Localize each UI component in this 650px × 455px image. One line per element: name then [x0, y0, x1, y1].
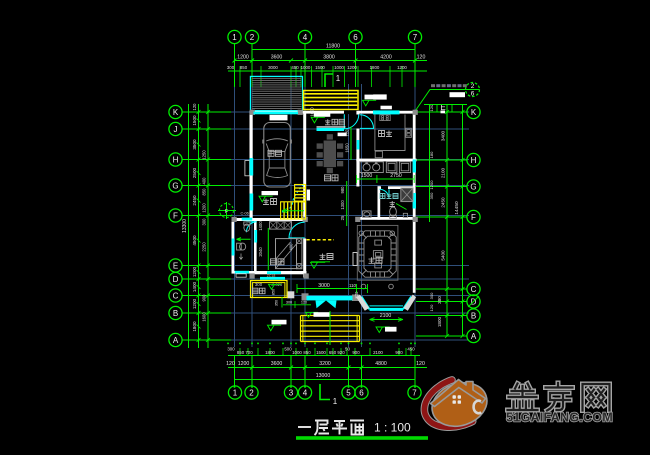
svg-text:350: 350 — [429, 192, 434, 199]
svg-text:51GAIFANG.COM: 51GAIFANG.COM — [506, 411, 613, 425]
svg-text:3600: 3600 — [271, 361, 283, 367]
svg-text:1200: 1200 — [347, 65, 357, 70]
svg-text:1: 1 — [232, 33, 237, 42]
svg-text:300: 300 — [286, 300, 292, 304]
svg-text:850: 850 — [272, 289, 276, 295]
svg-text:1200: 1200 — [192, 298, 197, 309]
svg-text:1400: 1400 — [192, 281, 197, 292]
svg-text:500: 500 — [284, 347, 292, 352]
svg-text:120: 120 — [429, 104, 434, 111]
svg-text:G: G — [470, 182, 476, 191]
svg-text:3800: 3800 — [323, 55, 335, 61]
svg-text:400: 400 — [202, 177, 207, 185]
svg-text:1: 1 — [336, 74, 341, 83]
svg-text:K: K — [173, 108, 179, 117]
svg-text:25: 25 — [340, 215, 345, 220]
svg-text:1800: 1800 — [265, 350, 275, 355]
svg-text:5: 5 — [346, 388, 351, 397]
svg-text:1200: 1200 — [397, 65, 407, 70]
svg-text:B: B — [173, 309, 178, 318]
svg-text:4800: 4800 — [375, 361, 387, 367]
svg-text:450: 450 — [291, 65, 299, 70]
svg-text:2100: 2100 — [373, 350, 383, 355]
svg-text:5400: 5400 — [441, 250, 446, 261]
svg-text:2250: 2250 — [202, 242, 207, 252]
svg-text:3200: 3200 — [319, 361, 331, 367]
svg-text:3000: 3000 — [268, 65, 278, 70]
svg-text:300: 300 — [227, 65, 235, 70]
svg-text:400: 400 — [289, 243, 294, 251]
svg-text:1000: 1000 — [334, 65, 344, 70]
svg-text:850: 850 — [303, 350, 311, 355]
svg-text:3600: 3600 — [271, 55, 283, 61]
svg-text:820: 820 — [354, 291, 359, 299]
svg-text:3: 3 — [289, 388, 294, 397]
svg-text:300: 300 — [255, 282, 263, 287]
svg-text:C-06: C-06 — [241, 212, 249, 216]
svg-text:1500: 1500 — [315, 65, 325, 70]
svg-text:14450: 14450 — [454, 201, 460, 215]
svg-text:120: 120 — [429, 304, 434, 311]
svg-text:4200: 4200 — [380, 55, 392, 61]
svg-text:1200: 1200 — [237, 55, 249, 61]
svg-text:300: 300 — [227, 347, 235, 352]
svg-text:2100: 2100 — [441, 167, 446, 178]
svg-text:1250: 1250 — [202, 150, 207, 160]
svg-text:900: 900 — [352, 350, 360, 355]
svg-text:F: F — [225, 209, 228, 215]
svg-text:50: 50 — [345, 347, 350, 352]
svg-text:6: 6 — [359, 388, 364, 397]
svg-text:980: 980 — [340, 186, 345, 194]
svg-text:E: E — [173, 261, 178, 270]
svg-text:2040: 2040 — [258, 247, 263, 257]
svg-text:850: 850 — [237, 350, 245, 355]
svg-text:3500: 3500 — [192, 139, 197, 150]
svg-text:120: 120 — [345, 129, 350, 137]
svg-text:1: 1 — [333, 397, 338, 406]
svg-text:B: B — [471, 311, 476, 320]
svg-text:1600: 1600 — [202, 312, 207, 322]
svg-text:1200: 1200 — [202, 203, 207, 213]
svg-text:1500: 1500 — [361, 173, 373, 179]
svg-text:G: G — [172, 181, 178, 190]
svg-text:1200: 1200 — [192, 266, 197, 277]
svg-text:2: 2 — [249, 388, 254, 397]
svg-text:C: C — [173, 291, 179, 300]
svg-text:1000: 1000 — [292, 350, 302, 355]
svg-text:850: 850 — [240, 65, 248, 70]
svg-text:700: 700 — [245, 350, 253, 355]
svg-text:1800: 1800 — [370, 65, 380, 70]
svg-text:1 : 100: 1 : 100 — [374, 421, 411, 435]
svg-text:450: 450 — [407, 347, 415, 352]
svg-text:1200: 1200 — [429, 180, 434, 190]
svg-text:2450: 2450 — [192, 195, 197, 206]
svg-text:300: 300 — [429, 292, 434, 299]
svg-text:650: 650 — [329, 350, 337, 355]
svg-text:1300: 1300 — [340, 200, 345, 210]
svg-text:3400: 3400 — [441, 130, 446, 141]
svg-text:850: 850 — [202, 188, 207, 196]
svg-text:6: 6 — [353, 33, 358, 42]
svg-text:350: 350 — [275, 300, 279, 306]
svg-text:900: 900 — [202, 294, 207, 302]
svg-text:120: 120 — [417, 55, 426, 61]
svg-text:1650: 1650 — [345, 143, 350, 153]
svg-text:120: 120 — [226, 361, 235, 367]
svg-text:D: D — [173, 275, 179, 284]
svg-text:C: C — [471, 285, 477, 294]
svg-text:1: 1 — [233, 388, 238, 397]
svg-text:A: A — [471, 332, 477, 341]
svg-text:1500: 1500 — [192, 115, 197, 126]
svg-text:2: 2 — [250, 33, 255, 42]
svg-text:13300: 13300 — [182, 219, 188, 233]
svg-text:ZC18: ZC18 — [267, 274, 276, 278]
svg-text:K: K — [471, 108, 477, 117]
svg-text:920: 920 — [337, 350, 345, 355]
svg-text:1800: 1800 — [192, 321, 197, 332]
svg-text:1500: 1500 — [316, 350, 326, 355]
svg-text:120: 120 — [301, 300, 307, 304]
svg-text:2750: 2750 — [390, 173, 402, 179]
svg-text:7: 7 — [412, 388, 417, 397]
svg-text:1000: 1000 — [301, 65, 311, 70]
svg-text:F: F — [471, 213, 476, 222]
svg-text:120: 120 — [416, 361, 425, 367]
svg-text:4500: 4500 — [192, 235, 197, 246]
svg-text:13000: 13000 — [316, 373, 331, 379]
svg-text:1650: 1650 — [310, 107, 315, 117]
svg-text:1400: 1400 — [258, 221, 263, 231]
svg-text:900: 900 — [395, 350, 403, 355]
svg-text:A: A — [173, 336, 179, 345]
svg-text:2: 2 — [471, 83, 475, 90]
svg-text:1200: 1200 — [238, 361, 250, 367]
svg-text:1800: 1800 — [437, 316, 442, 327]
svg-text:300: 300 — [202, 218, 207, 226]
svg-text:2450: 2450 — [441, 197, 446, 208]
svg-text:2100: 2100 — [380, 313, 392, 319]
svg-text:180: 180 — [429, 151, 434, 158]
svg-text:11800: 11800 — [326, 44, 340, 50]
svg-text:380: 380 — [437, 296, 442, 304]
svg-text:H: H — [173, 155, 179, 164]
svg-text:F: F — [173, 211, 178, 220]
svg-text:4: 4 — [303, 388, 308, 397]
svg-text:3000: 3000 — [318, 283, 330, 289]
svg-text:H: H — [471, 156, 477, 165]
svg-text:J: J — [174, 125, 178, 134]
svg-text:110: 110 — [349, 283, 357, 288]
svg-text:120: 120 — [192, 103, 197, 111]
svg-text:6: 6 — [471, 91, 475, 98]
svg-text:7: 7 — [413, 33, 418, 42]
svg-text:4: 4 — [303, 33, 308, 42]
svg-text:2500: 2500 — [192, 167, 197, 178]
